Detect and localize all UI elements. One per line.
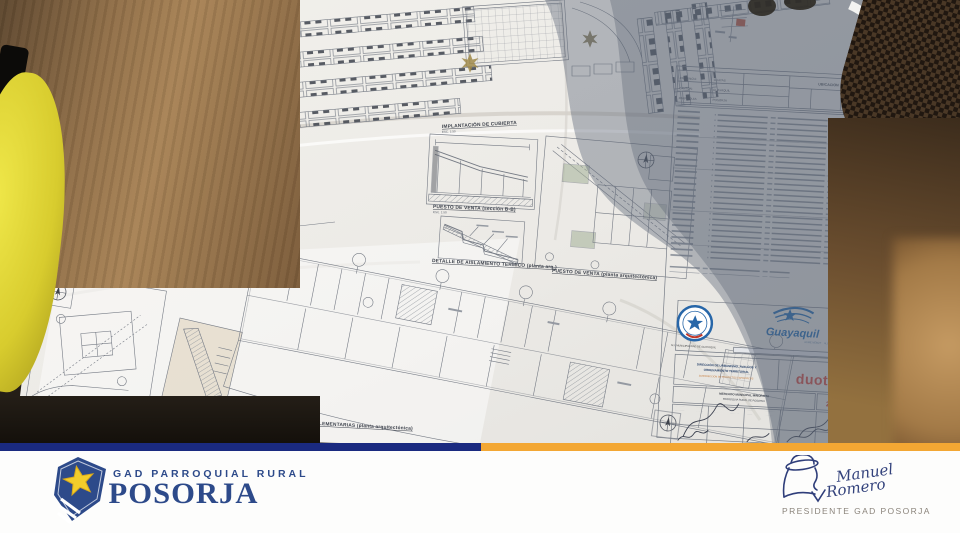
hat-figure-icon bbox=[782, 455, 828, 509]
stripe-gold bbox=[481, 443, 960, 451]
signature-last-name: Romero bbox=[825, 475, 887, 501]
table-shadow bbox=[0, 396, 320, 443]
brand-name: POSORJA bbox=[109, 477, 259, 511]
post-image: IMPLANTACIÓN DE CUBIERTA ESC. 1:50 PLANT… bbox=[0, 0, 960, 533]
divider-stripe bbox=[0, 443, 960, 451]
caption-esc: ESC. 1:50 bbox=[433, 210, 447, 214]
caption-esc: ESC. 1:50 bbox=[442, 129, 456, 134]
stripe-blue bbox=[0, 443, 481, 451]
footer-banner: GAD PARROQUIAL RURAL POSORJA Manuel Rome… bbox=[0, 451, 960, 533]
municipal-seal-icon bbox=[677, 305, 713, 341]
posorja-shield-icon bbox=[48, 455, 114, 529]
photo-of-blueprints: IMPLANTACIÓN DE CUBIERTA ESC. 1:50 PLANT… bbox=[0, 0, 960, 443]
blurred-hand bbox=[893, 238, 960, 443]
presidente-label: PRESIDENTE GAD POSORJA bbox=[782, 506, 931, 516]
